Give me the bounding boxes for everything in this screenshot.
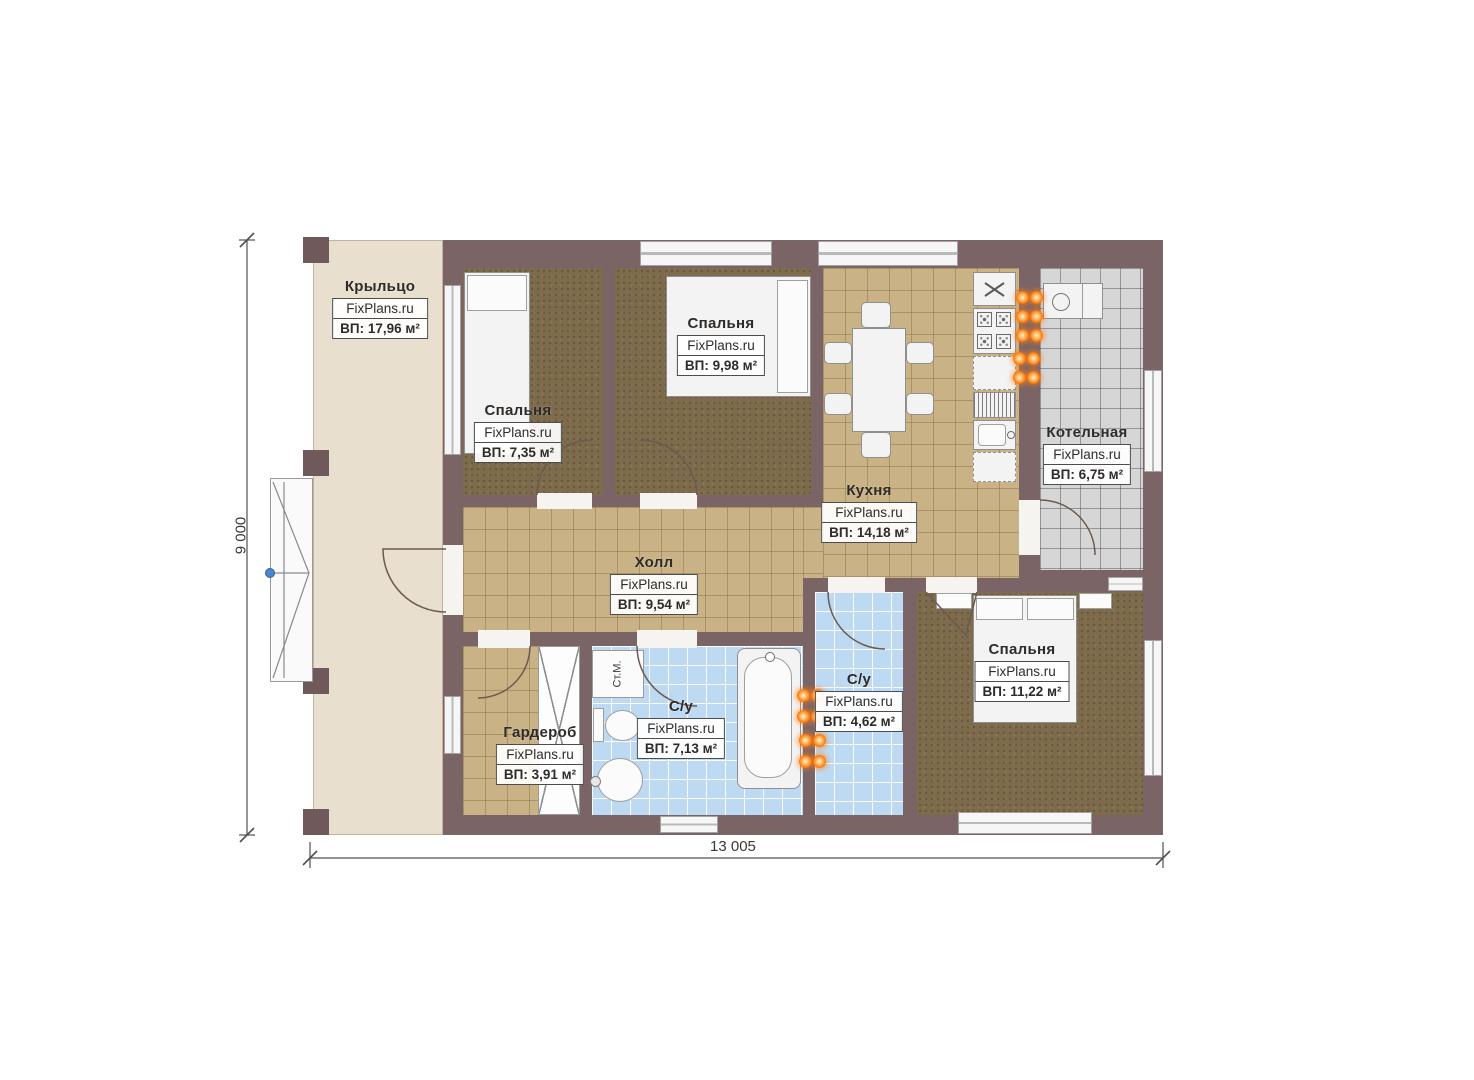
- door-opening-wardrobe: [478, 630, 530, 648]
- chair-icon: [906, 342, 934, 364]
- chair-icon: [861, 432, 891, 458]
- floor-hall-kitchen-opening: [803, 507, 823, 578]
- pillow-icon: [777, 280, 808, 393]
- door-opening-bath-1: [637, 630, 697, 648]
- window: [444, 285, 461, 455]
- room-label-bath-1: С/у FixPlans.ru ВП: 7,13 м²: [637, 698, 725, 759]
- toilet-icon: [593, 708, 604, 742]
- window: [1144, 640, 1162, 776]
- nightstand-icon: [936, 593, 972, 609]
- door-opening-bath-2: [828, 577, 885, 593]
- room-label-wardrobe: Гардероб FixPlans.ru ВП: 3,91 м²: [496, 724, 584, 785]
- entrance-steps-marker: [270, 478, 313, 682]
- room-label-hall: Холл FixPlans.ru ВП: 9,54 м²: [610, 554, 698, 615]
- room-label-boiler: Котельная FixPlans.ru ВП: 6,75 м²: [1043, 424, 1131, 485]
- chair-icon: [824, 342, 852, 364]
- boiler-unit-icon: [1043, 283, 1103, 319]
- room-label-bedroom-2: Спальня FixPlans.ru ВП: 9,98 м²: [677, 315, 765, 376]
- room-label-kitchen: Кухня FixPlans.ru ВП: 14,18 м²: [821, 482, 917, 543]
- pilaster: [303, 450, 329, 476]
- door-opening-bedroom-2: [640, 493, 697, 509]
- dishwasher-icon: [973, 392, 1016, 418]
- pillow-icon: [976, 598, 1023, 620]
- dining-table-icon: [852, 328, 906, 432]
- kitchen-sink-icon: [973, 420, 1016, 450]
- window: [1144, 370, 1162, 472]
- radiator-glow-icon: [1016, 329, 1043, 342]
- room-label-bath-2: С/у FixPlans.ru ВП: 4,62 м²: [815, 671, 903, 732]
- door-opening-bedroom-3: [926, 577, 977, 593]
- stove-icon: [973, 308, 1016, 354]
- pillow-icon: [467, 275, 527, 311]
- window: [958, 812, 1092, 834]
- door-opening-entrance: [443, 545, 463, 615]
- toilet-bowl-icon: [605, 710, 640, 741]
- chair-icon: [861, 302, 891, 328]
- nightstand-icon: [1079, 593, 1112, 609]
- bathtub-icon: [737, 648, 801, 789]
- window: [444, 696, 461, 754]
- radiator-glow-icon: [799, 734, 826, 747]
- kitchen-vent-icon: [973, 272, 1016, 306]
- radiator-glow-icon: [799, 755, 826, 768]
- pilaster: [303, 809, 329, 835]
- room-label-bedroom-1: Спальня FixPlans.ru ВП: 7,35 м²: [474, 402, 562, 463]
- room-label-bedroom-3: Спальня FixPlans.ru ВП: 11,22 м²: [975, 641, 1070, 702]
- radiator-glow-icon: [1016, 310, 1043, 323]
- washing-machine-label: Ст.М.: [612, 660, 624, 687]
- dimension-width-label: 13 005: [710, 838, 756, 855]
- kitchen-cabinet-icon: [973, 452, 1016, 482]
- door-opening-boiler: [1019, 500, 1040, 555]
- radiator-glow-icon: [1013, 371, 1040, 384]
- washing-machine-icon: Ст.М.: [592, 650, 644, 698]
- room-label-porch: Крыльцо FixPlans.ru ВП: 17,96 м²: [332, 278, 428, 339]
- chair-icon: [824, 393, 852, 415]
- chair-icon: [906, 393, 934, 415]
- floor-plan-canvas: Ст.М.: [0, 0, 1474, 1080]
- window: [1108, 577, 1143, 591]
- dimension-height-label: 9 000: [232, 517, 249, 555]
- sink-icon: [597, 758, 643, 802]
- door-opening-bedroom-1: [537, 493, 592, 509]
- radiator-glow-icon: [1016, 291, 1043, 304]
- window: [660, 816, 718, 833]
- pillow-icon: [1027, 598, 1074, 620]
- window: [818, 241, 958, 266]
- radiator-glow-icon: [1013, 352, 1040, 365]
- kitchen-cabinet-icon: [973, 356, 1016, 390]
- sink-faucet-icon: [590, 776, 601, 787]
- pilaster: [303, 237, 329, 263]
- window: [640, 241, 772, 266]
